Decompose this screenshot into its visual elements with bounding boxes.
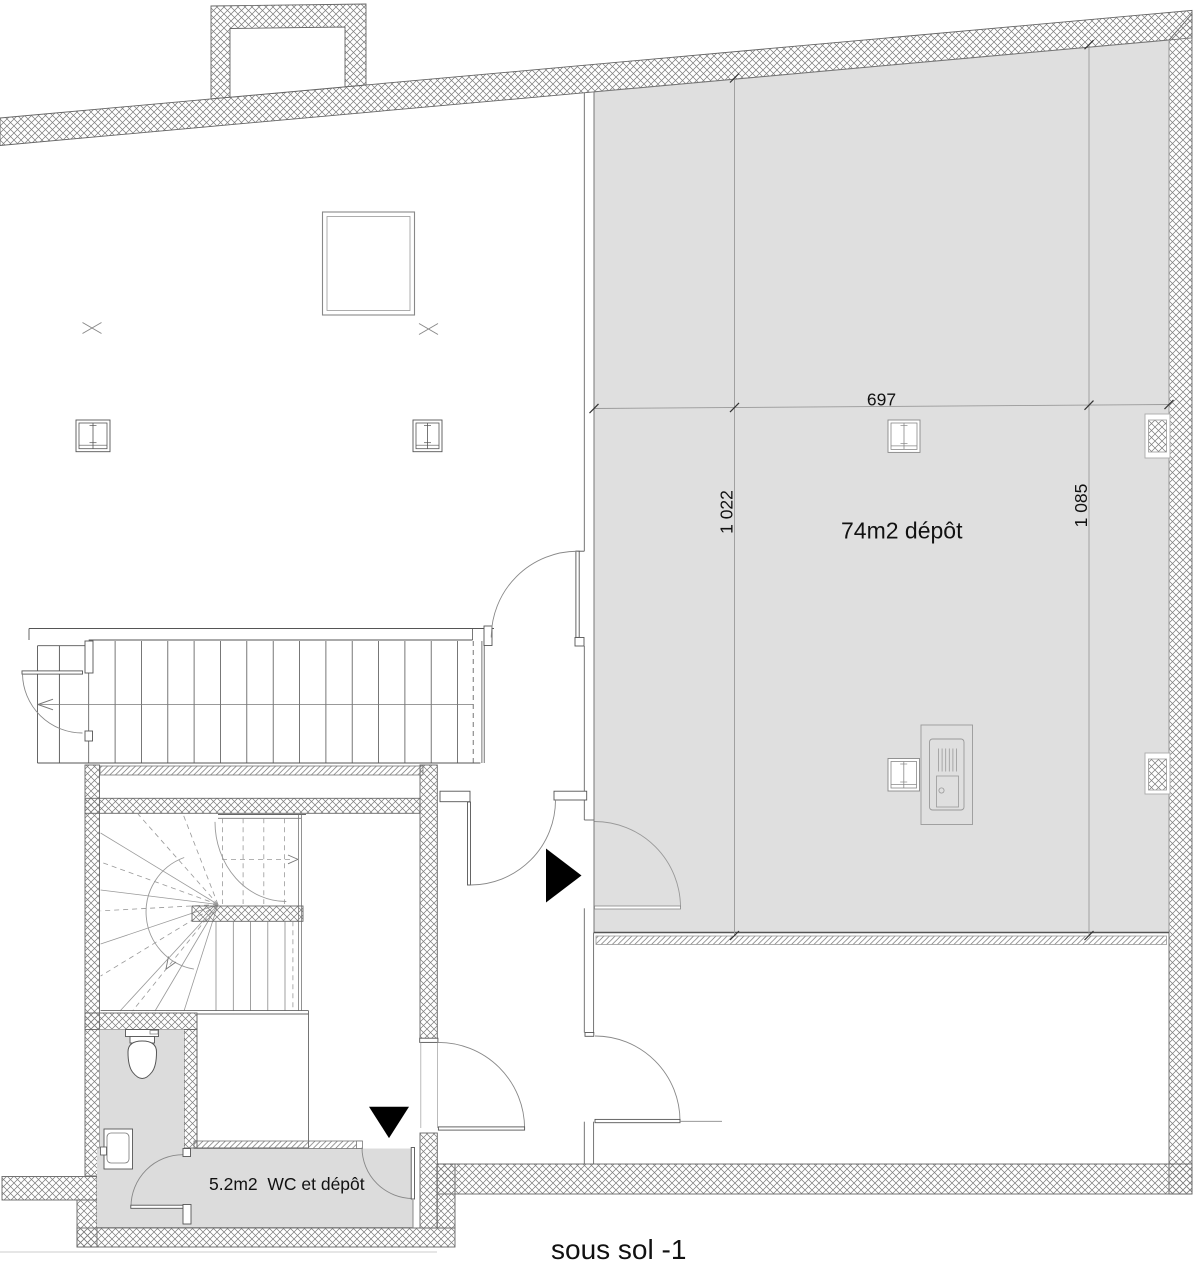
svg-text:1 022: 1 022: [717, 490, 737, 534]
svg-text:sous sol -1: sous sol -1: [551, 1234, 686, 1265]
svg-text:697: 697: [867, 390, 896, 410]
svg-text:5.2m2 WC et dépôt: 5.2m2 WC et dépôt: [209, 1174, 365, 1194]
svg-text:74m2 dépôt: 74m2 dépôt: [841, 518, 963, 544]
svg-text:1 085: 1 085: [1071, 484, 1091, 528]
